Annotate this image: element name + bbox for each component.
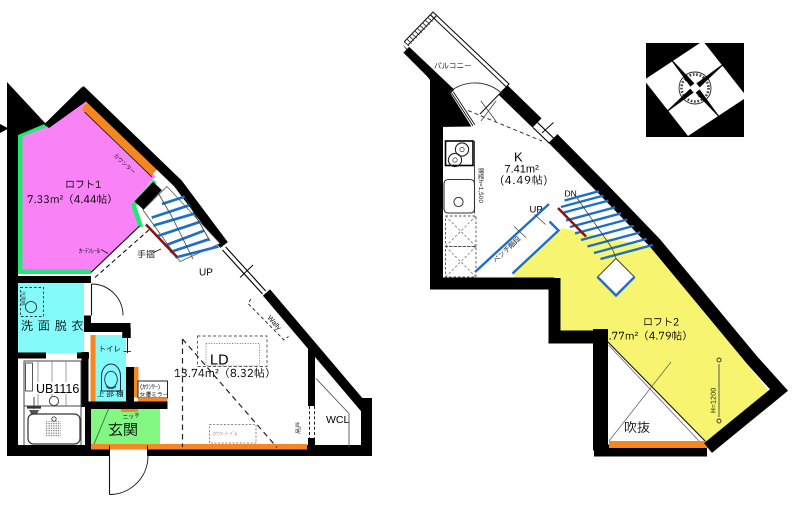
svg-text:WCL: WCL xyxy=(326,414,349,426)
svg-text:K: K xyxy=(514,150,523,165)
svg-text:UB1116: UB1116 xyxy=(36,382,79,396)
svg-text:LD: LD xyxy=(210,353,229,369)
svg-text:UP: UP xyxy=(199,268,213,279)
svg-text:7.41m²: 7.41m² xyxy=(505,164,540,176)
